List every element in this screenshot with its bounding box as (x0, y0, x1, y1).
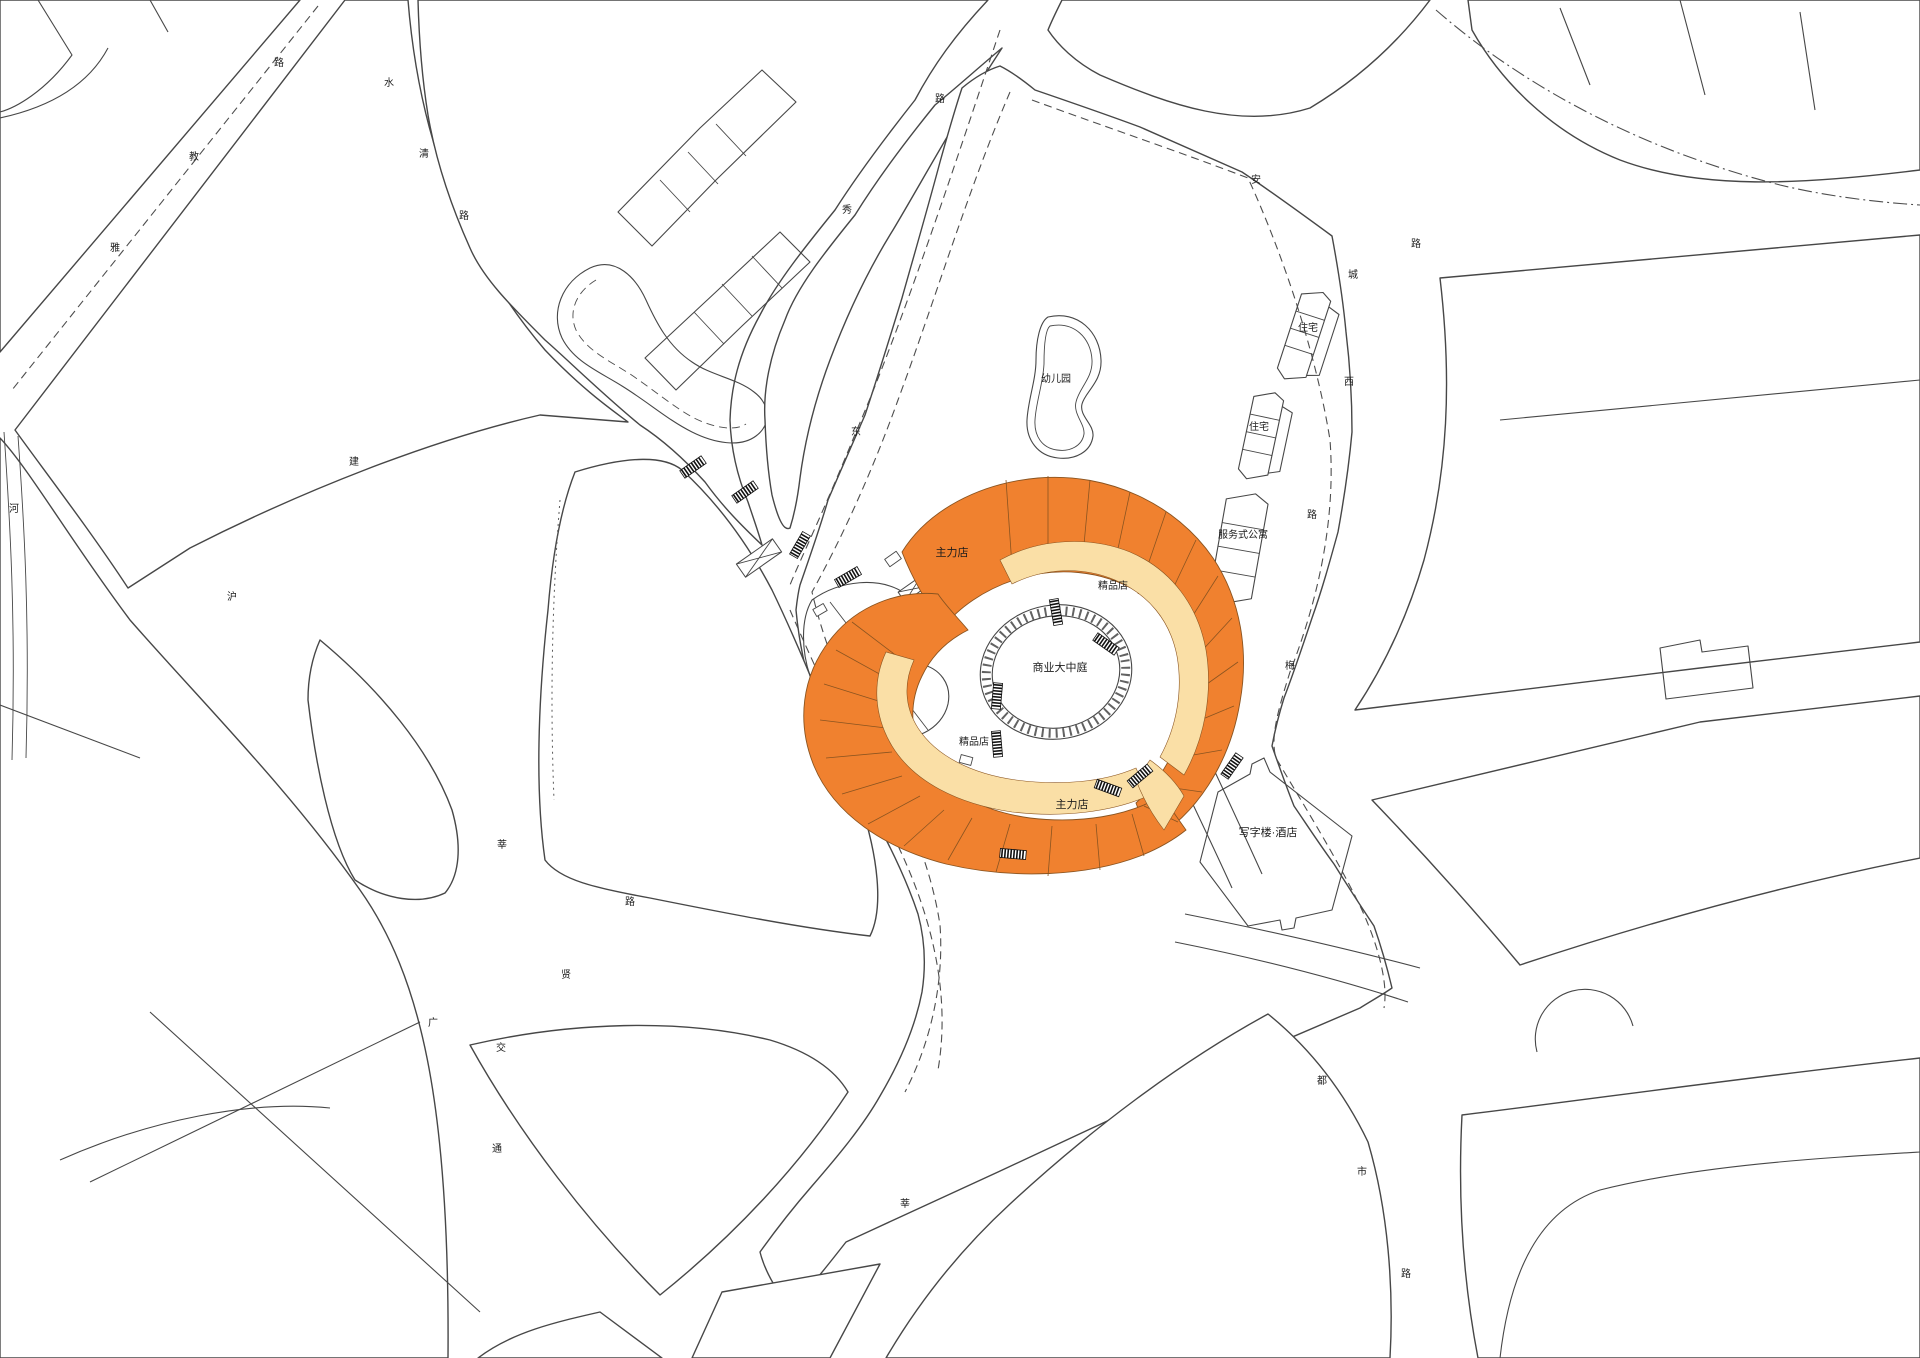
road-name-label: 路 (1401, 1267, 1411, 1280)
road-name-label: 梅 (1285, 659, 1295, 672)
road-name-label: 路 (935, 92, 945, 105)
road-name-label: 建 (349, 455, 359, 468)
road-name-label: 秀 (842, 204, 852, 216)
block-l (1372, 696, 1920, 965)
block-p (1048, 0, 1430, 116)
road-name-label: 西 (1344, 377, 1354, 388)
facility-label: 精品店 (1098, 579, 1128, 592)
block-west (0, 438, 448, 1358)
city-blocks (0, 0, 1920, 1358)
facility-label: 幼儿园 (1041, 372, 1071, 385)
road-name-label: 莘 (497, 838, 507, 851)
road-name-label: 路 (459, 209, 469, 222)
facility-label: 主力店 (1056, 797, 1089, 811)
block-j (1468, 0, 1920, 182)
road-name-label: 城 (1348, 269, 1358, 281)
road-name-label: 东 (851, 425, 861, 438)
site-plan-canvas: 路教雅水清路路秀东安路城西路梅河建沪莘路贤广交通莘都市路 幼儿园住宅住宅服务式公… (0, 0, 1920, 1358)
road-name-label: 水 (384, 77, 394, 89)
road-name-label: 交 (496, 1041, 506, 1054)
facility-label: 住宅 (1298, 321, 1318, 334)
block-m (1461, 1058, 1920, 1358)
facility-label: 服务式公寓 (1218, 528, 1268, 541)
road-name-label: 教 (189, 150, 199, 163)
road-name-label: 清 (419, 147, 429, 160)
facility-label: 精品店 (959, 735, 989, 748)
facility-label: 商业大中庭 (1033, 660, 1088, 674)
road-name-label: 广 (428, 1017, 438, 1029)
road-name-label: 市 (1357, 1165, 1367, 1178)
escalator-icon (991, 683, 1002, 710)
facility-label: 主力店 (936, 545, 969, 559)
road-name-label: 安 (1251, 173, 1261, 186)
road-name-label: 路 (274, 56, 284, 69)
road-name-label: 都 (1317, 1075, 1327, 1087)
facility-label: 住宅 (1249, 420, 1269, 433)
road-name-label: 河 (9, 503, 19, 515)
road-name-label: 通 (492, 1143, 502, 1155)
road-name-label: 路 (625, 895, 635, 908)
road-name-label: 沪 (227, 590, 237, 603)
block-k (1355, 235, 1920, 710)
site-plan-drawing: 路教雅水清路路秀东安路城西路梅河建沪莘路贤广交通莘都市路 幼儿园住宅住宅服务式公… (0, 0, 1920, 1358)
road-name-label: 莘 (900, 1197, 910, 1210)
escalator-icon (1000, 848, 1027, 859)
facility-label: 写字楼·酒店 (1239, 825, 1298, 839)
road-name-label: 路 (1411, 237, 1421, 250)
escalator-icon (991, 731, 1002, 758)
road-name-label: 贤 (561, 969, 571, 981)
road-name-label: 雅 (110, 241, 120, 254)
road-name-label: 路 (1307, 508, 1317, 521)
